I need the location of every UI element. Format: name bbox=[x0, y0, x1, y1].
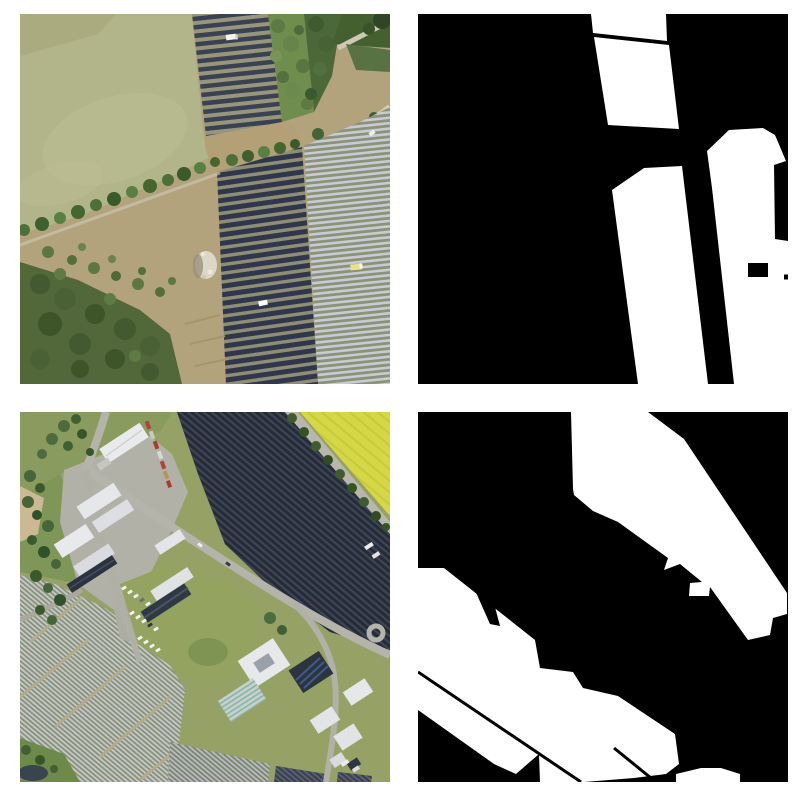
aerial-image-top-svg bbox=[20, 14, 390, 384]
segmentation-mask-bottom-svg bbox=[418, 412, 788, 782]
segmentation-mask-top-right bbox=[418, 14, 788, 384]
segmentation-mask-bottom-right bbox=[418, 412, 788, 782]
aerial-image-top-left bbox=[20, 14, 390, 384]
segmentation-mask-top-svg bbox=[418, 14, 788, 384]
aerial-image-bottom-left bbox=[20, 412, 390, 782]
figure-grid bbox=[0, 0, 807, 800]
aerial-image-bottom-svg bbox=[20, 412, 390, 782]
